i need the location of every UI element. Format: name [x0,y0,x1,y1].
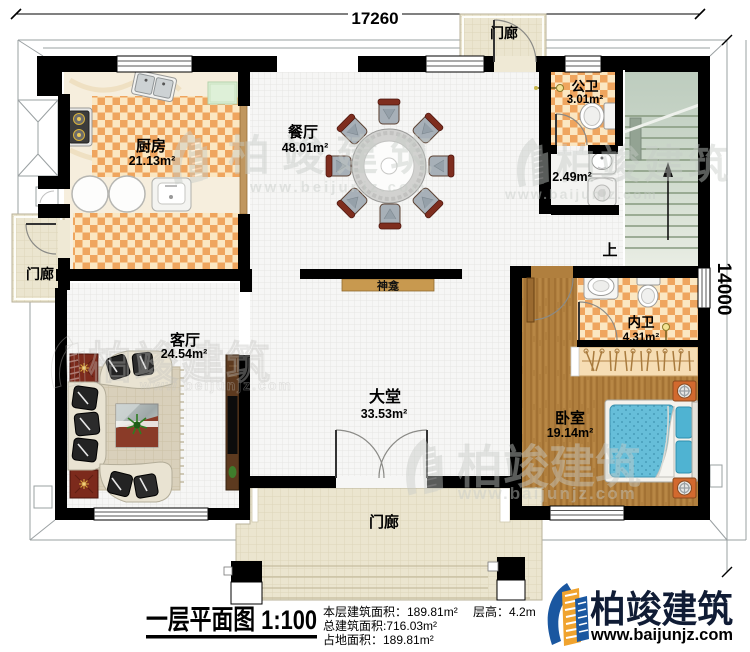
svg-text:24.54m²: 24.54m² [161,347,208,361]
svg-text:上: 上 [602,242,617,259]
svg-text:14000: 14000 [713,263,734,316]
svg-text:www.baijunjz.com: www.baijunjz.com [504,186,658,202]
svg-text:3.01m²: 3.01m² [567,94,604,106]
svg-text:门廊: 门廊 [369,513,399,531]
svg-text:神龛: 神龛 [377,279,400,293]
svg-text:www.beijunjz.com: www.beijunjz.com [249,179,427,196]
svg-text:餐厅: 餐厅 [288,123,318,141]
svg-text:2.49m²: 2.49m² [552,170,592,184]
svg-text:总建筑面积:716.03m²: 总建筑面积:716.03m² [323,618,437,633]
svg-text:33.53m²: 33.53m² [361,407,408,421]
svg-text:21.13m²: 21.13m² [129,154,176,168]
svg-text:48.01m²: 48.01m² [282,141,329,155]
svg-text:柏竣建筑: 柏竣建筑 [590,588,733,630]
svg-text:www.beijunjz.com: www.beijunjz.com [139,377,293,393]
svg-text:www.baijunjz.com: www.baijunjz.com [457,484,637,503]
svg-text:4.31m²: 4.31m² [623,332,660,344]
svg-text:内卫: 内卫 [628,314,656,330]
svg-text:www.baijunjz.com: www.baijunjz.com [590,626,733,644]
svg-text:门廊: 门廊 [26,266,54,282]
svg-text:大堂: 大堂 [369,387,401,406]
svg-text:19.14m²: 19.14m² [547,426,594,440]
svg-text:门廊: 门廊 [490,25,518,41]
svg-text:17260: 17260 [351,9,398,28]
svg-text:本层建筑面积：189.81m² 层高：4.2m: 本层建筑面积：189.81m² 层高：4.2m [323,604,536,619]
svg-text:厨房: 厨房 [136,137,166,155]
svg-text:占地面积：189.81m²: 占地面积：189.81m² [323,632,434,647]
svg-text:一层平面图 1:100: 一层平面图 1:100 [146,605,317,635]
svg-text:公卫: 公卫 [572,79,600,94]
svg-text:卧室: 卧室 [555,409,585,427]
svg-text:柏竣建筑: 柏竣建筑 [228,132,444,179]
